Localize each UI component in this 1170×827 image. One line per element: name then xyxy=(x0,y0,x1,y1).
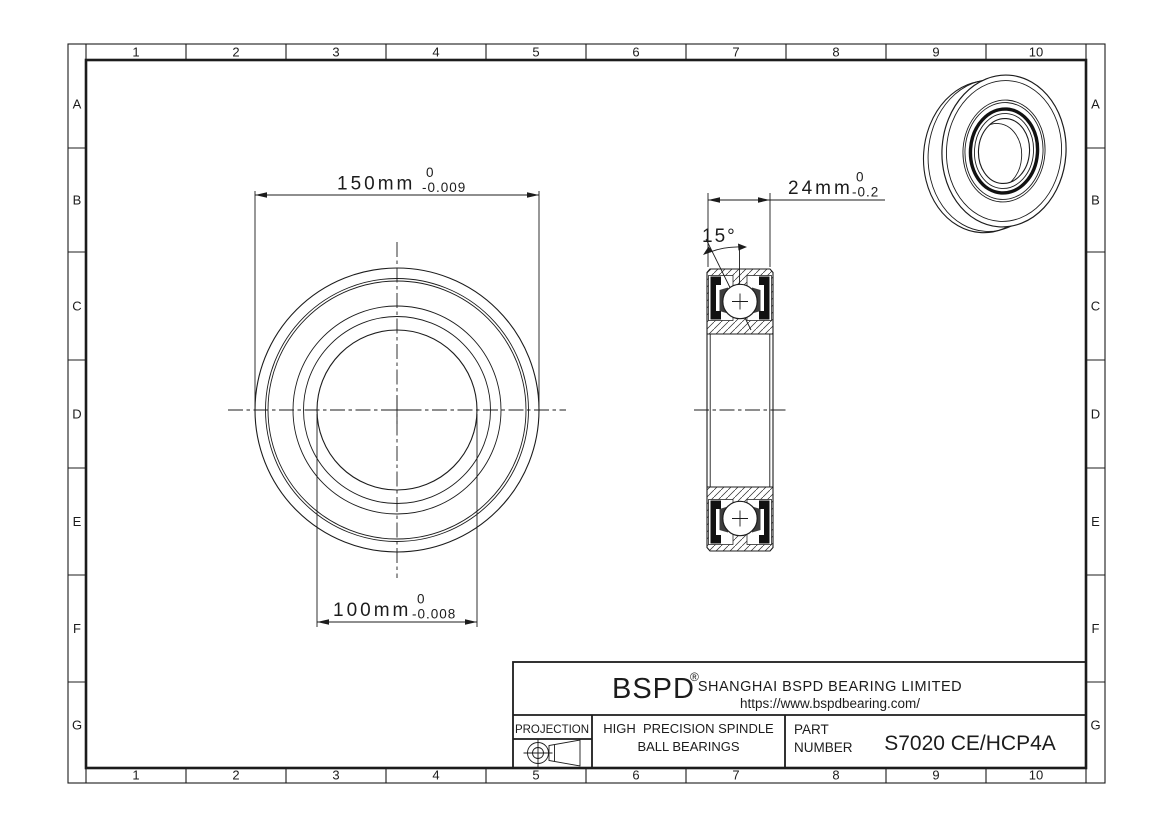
grid-row-right-c: C xyxy=(1091,299,1100,314)
part-number: S7020 CE/HCP4A xyxy=(884,732,1056,755)
part-label-line2: NUMBER xyxy=(794,740,853,755)
grid-col-bottom-2: 2 xyxy=(232,768,239,783)
projection-label: PROJECTION xyxy=(515,724,589,736)
grid-row-left-g: G xyxy=(72,718,82,733)
bore-tol-lower: -0.008 xyxy=(412,607,456,622)
front-view: 150mm 0 -0.009 100mm 0 -0.008 xyxy=(228,165,566,627)
width-dim-value: 24mm xyxy=(788,178,853,199)
grid-row-right-e: E xyxy=(1091,514,1100,529)
grid-col-top-2: 2 xyxy=(232,45,239,60)
iso-face-outer-edge xyxy=(937,71,1071,231)
bore-silhouette-lines xyxy=(710,334,770,487)
grid-col-bottom-4: 4 xyxy=(432,768,439,783)
grid-labels-bottom: 1 2 3 4 5 6 7 8 9 10 xyxy=(132,768,1043,783)
title-block: BSPD ® SHANGHAI BSPD BEARING LIMITED htt… xyxy=(513,662,1086,768)
width-dimension: 24mm 0 -0.2 xyxy=(708,170,885,268)
company-name: SHANGHAI BSPD BEARING LIMITED xyxy=(698,679,962,695)
grid-labels-left: A B C D E F G xyxy=(72,97,82,733)
width-arrow-right xyxy=(758,197,770,202)
grid-row-left-e: E xyxy=(73,514,82,529)
grid-row-right-a: A xyxy=(1091,97,1100,112)
grid-row-right-b: B xyxy=(1091,193,1100,208)
contact-angle-value: 15° xyxy=(702,226,737,247)
od-arrow-left xyxy=(255,192,267,197)
grid-col-bottom-7: 7 xyxy=(732,768,739,783)
engineering-drawing: 1 2 3 4 5 6 7 8 9 10 1 2 3 4 5 6 7 8 9 1… xyxy=(0,0,1170,827)
bore-dimension: 100mm 0 -0.008 xyxy=(317,414,477,627)
bore-extension-lines xyxy=(317,414,477,627)
grid-row-left-a: A xyxy=(73,97,82,112)
bore-arrow-right xyxy=(465,619,477,624)
grid-col-bottom-6: 6 xyxy=(632,768,639,783)
bore-arrow-left xyxy=(317,619,329,624)
grid-col-bottom-1: 1 xyxy=(132,768,139,783)
grid-col-bottom-8: 8 xyxy=(832,768,839,783)
grid-col-bottom-10: 10 xyxy=(1029,768,1043,783)
grid-row-left-d: D xyxy=(72,407,81,422)
width-tol-upper: 0 xyxy=(856,170,865,185)
row-ticks xyxy=(68,148,1105,682)
grid-col-bottom-9: 9 xyxy=(932,768,939,783)
product-line-2: BALL BEARINGS xyxy=(637,739,739,754)
part-label-line1: PART xyxy=(794,722,829,737)
width-tol-lower: -0.2 xyxy=(852,185,879,200)
projection-symbol-icon xyxy=(524,739,581,768)
isometric-view xyxy=(918,70,1071,239)
grid-col-top-1: 1 xyxy=(132,45,139,60)
ring-bore-edges xyxy=(707,334,773,487)
brand-logo: BSPD xyxy=(612,673,695,705)
grid-row-right-g: G xyxy=(1090,718,1100,733)
grid-col-top-9: 9 xyxy=(932,45,939,60)
product-line-1: HIGH PRECISION SPINDLE xyxy=(603,721,774,736)
grid-col-top-8: 8 xyxy=(832,45,839,60)
od-tol-upper: 0 xyxy=(426,165,435,180)
grid-labels-top: 1 2 3 4 5 6 7 8 9 10 xyxy=(132,45,1043,60)
projection-cone xyxy=(549,740,580,766)
grid-col-top-5: 5 xyxy=(532,45,539,60)
strip-corner-lines xyxy=(86,44,1086,783)
company-website: https://www.bspdbearing.com/ xyxy=(740,696,920,711)
grid-row-left-c: C xyxy=(72,299,81,314)
grid-col-top-4: 4 xyxy=(432,45,439,60)
grid-row-left-f: F xyxy=(73,621,81,636)
grid-col-bottom-3: 3 xyxy=(332,768,339,783)
od-dim-value: 150mm xyxy=(337,174,415,195)
grid-row-left-b: B xyxy=(73,193,82,208)
grid-col-top-10: 10 xyxy=(1029,45,1043,60)
contact-angle-dimension: 15° xyxy=(702,226,747,255)
section-view: 24mm 0 -0.2 15° xyxy=(694,170,885,552)
angle-arrow-right xyxy=(738,244,747,251)
od-arrow-right xyxy=(527,192,539,197)
grid-row-right-d: D xyxy=(1091,407,1100,422)
grid-col-top-7: 7 xyxy=(732,45,739,60)
bore-tol-upper: 0 xyxy=(417,592,426,607)
drawing-sheet: 1 2 3 4 5 6 7 8 9 10 1 2 3 4 5 6 7 8 9 1… xyxy=(0,0,1170,827)
grid-row-right-f: F xyxy=(1092,621,1100,636)
grid-col-top-6: 6 xyxy=(632,45,639,60)
projection-crosshair xyxy=(524,739,553,768)
center-mark xyxy=(383,396,411,424)
grid-labels-right: A B C D E F G xyxy=(1090,97,1100,733)
angle-arc xyxy=(710,247,740,252)
width-arrow-left xyxy=(708,197,720,202)
bore-dim-value: 100mm xyxy=(333,600,411,621)
column-ticks xyxy=(186,44,986,783)
grid-col-top-3: 3 xyxy=(332,45,339,60)
od-tol-lower: -0.009 xyxy=(422,180,466,195)
grid-col-bottom-5: 5 xyxy=(532,768,539,783)
